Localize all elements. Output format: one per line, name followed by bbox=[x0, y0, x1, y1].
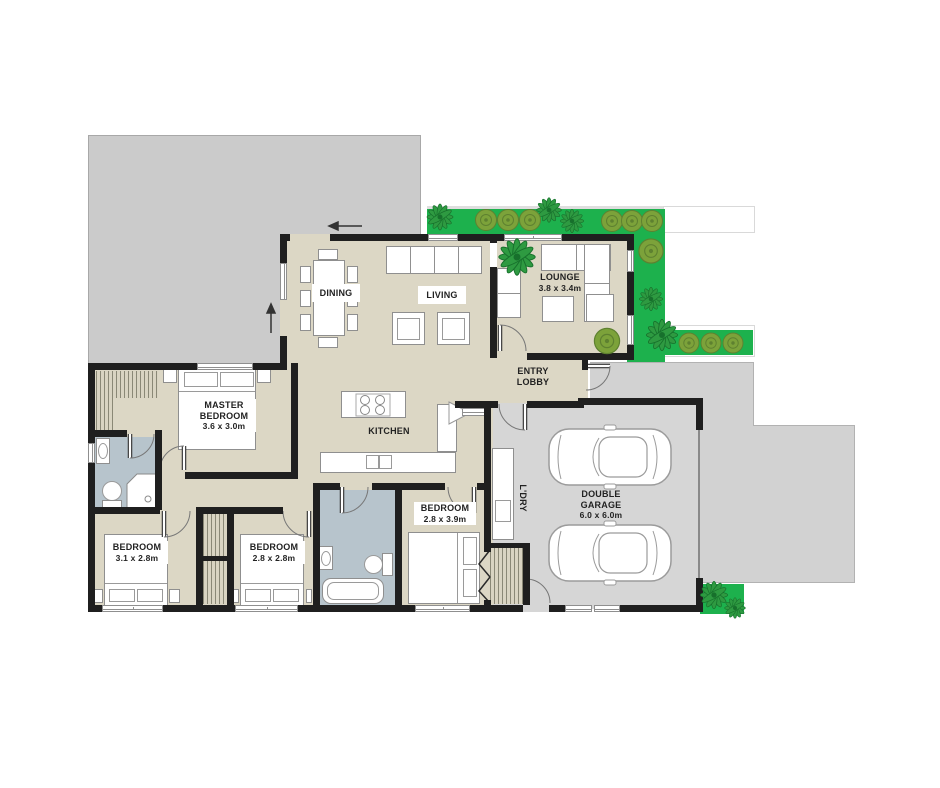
plants-overlay bbox=[0, 0, 940, 788]
room-name: KITCHEN bbox=[368, 426, 409, 436]
palm-icon bbox=[700, 581, 727, 608]
room-dims: 2.8 x 2.8m bbox=[243, 553, 305, 563]
room-name: MASTER BEDROOM bbox=[192, 400, 256, 421]
palm-icon bbox=[560, 209, 583, 232]
label-master-bedroom: MASTER BEDROOM 3.6 x 3.0m bbox=[192, 399, 256, 432]
room-name: L'DRY bbox=[518, 484, 528, 511]
bush-icon bbox=[723, 333, 743, 353]
palm-icon bbox=[427, 204, 453, 230]
label-garage: DOUBLE GARAGE 6.0 x 6.0m bbox=[569, 489, 633, 520]
bush-icon bbox=[476, 210, 497, 231]
bush-icon bbox=[701, 333, 721, 353]
room-name: BEDROOM bbox=[106, 542, 168, 553]
room-name: BEDROOM bbox=[243, 542, 305, 553]
room-name: LOUNGE bbox=[526, 272, 594, 283]
label-bedroom-1: BEDROOM 3.1 x 2.8m bbox=[106, 541, 168, 564]
room-name: LIVING bbox=[426, 290, 457, 300]
bush-icon bbox=[602, 211, 623, 232]
label-entry-lobby: ENTRY LOBBY bbox=[505, 366, 561, 387]
palm-icon bbox=[725, 598, 746, 619]
bush-icon bbox=[642, 211, 663, 232]
room-dims: 3.8 x 3.4m bbox=[526, 283, 594, 293]
label-laundry: L'DRY bbox=[516, 478, 528, 518]
bush-icon bbox=[639, 239, 663, 263]
room-name: DINING bbox=[320, 288, 353, 298]
bush-icon bbox=[679, 333, 699, 353]
palm-icon bbox=[639, 287, 662, 310]
bush-icon bbox=[594, 328, 619, 353]
bush-icon bbox=[622, 211, 643, 232]
room-dims: 3.6 x 3.0m bbox=[192, 421, 256, 431]
bush-icon bbox=[498, 210, 519, 231]
label-bedroom-3: BEDROOM 2.8 x 3.9m bbox=[414, 502, 476, 525]
room-name: DOUBLE GARAGE bbox=[569, 489, 633, 510]
label-bedroom-2: BEDROOM 2.8 x 2.8m bbox=[243, 541, 305, 564]
room-dims: 6.0 x 6.0m bbox=[569, 510, 633, 520]
floor-plan: DINING LIVING LOUNGE 3.8 x 3.4m ENTRY LO… bbox=[0, 0, 940, 788]
bush-icon bbox=[520, 210, 541, 231]
room-name: BEDROOM bbox=[414, 503, 476, 514]
label-lounge: LOUNGE 3.8 x 3.4m bbox=[526, 272, 594, 293]
palm-icon bbox=[499, 239, 535, 275]
room-dims: 3.1 x 2.8m bbox=[106, 553, 168, 563]
label-dining: DINING bbox=[312, 284, 360, 302]
room-name: ENTRY LOBBY bbox=[517, 366, 550, 387]
label-kitchen: KITCHEN bbox=[360, 426, 418, 437]
palm-icon bbox=[646, 319, 677, 350]
label-living: LIVING bbox=[418, 286, 466, 304]
room-dims: 2.8 x 3.9m bbox=[414, 514, 476, 524]
